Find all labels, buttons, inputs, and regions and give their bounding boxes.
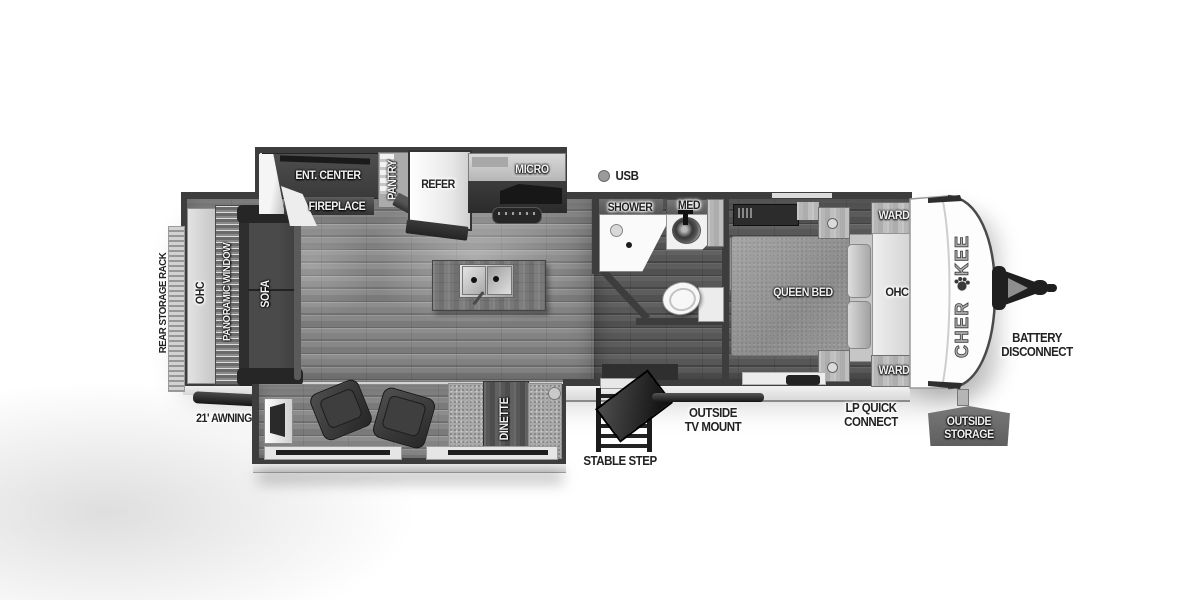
svg-text:KEE: KEE	[952, 234, 972, 276]
svg-text:CHER: CHER	[952, 301, 972, 358]
